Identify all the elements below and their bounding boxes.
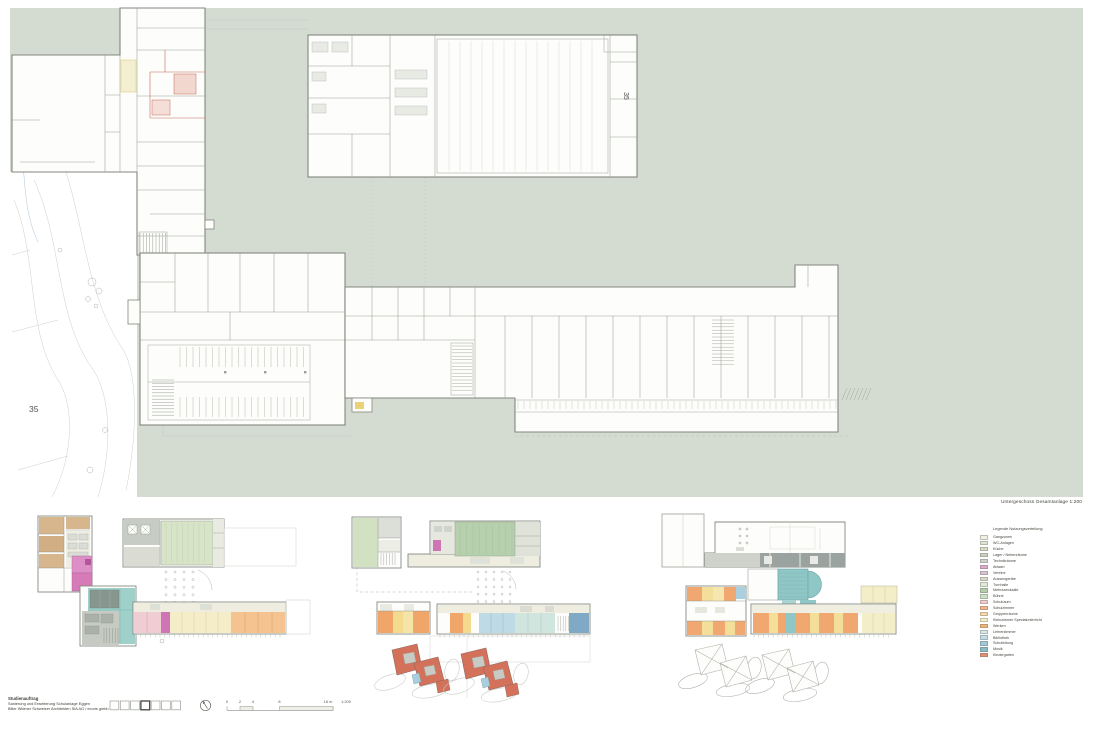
keyplan-box — [172, 701, 181, 710]
legend-swatch — [980, 647, 988, 651]
plan1-tree-grid — [165, 571, 194, 604]
legend-swatch — [980, 588, 988, 592]
site-street-number: 35 — [29, 404, 39, 414]
legend-label: Schulleitung — [993, 641, 1013, 645]
legend-item: Kindergarten — [980, 652, 1092, 658]
legend-label: Abwart — [993, 565, 1004, 569]
legend-label: Aussengeräte — [993, 577, 1016, 581]
legend-swatch — [980, 653, 988, 657]
legend-swatch — [980, 541, 988, 545]
legend-label: Kindergarten — [993, 653, 1014, 657]
plan1-turnhalle — [161, 521, 213, 565]
legend-swatch — [980, 635, 988, 639]
scale-ratio: 1:200 — [341, 699, 352, 704]
legend-label: Gruppenräume — [993, 612, 1018, 616]
legend-label: Schulzimmer — [993, 606, 1014, 610]
scale-tick-2: 2 — [239, 699, 241, 704]
alteration-mark — [121, 60, 136, 92]
footer: 0 2 4 8 16 m 1:200 — [110, 699, 352, 711]
legend-label: Werken — [993, 624, 1006, 628]
scale-bar: 0 2 4 8 16 m 1:200 — [226, 699, 352, 710]
legend-swatch — [980, 577, 988, 581]
legend-swatch — [980, 559, 988, 563]
plan3-curved-room — [808, 571, 822, 598]
scale-tick-16: 16 m — [324, 699, 333, 704]
plan-erdgeschoss — [38, 516, 310, 646]
legend-swatch — [980, 630, 988, 634]
storey-keyplan — [110, 701, 181, 710]
plan2-schulleitung — [569, 613, 589, 633]
legend-swatch — [980, 624, 988, 628]
legend-swatch — [980, 553, 988, 557]
legend-label: Mehrzwecksäle — [993, 588, 1018, 592]
main-plan: 35 484 — [10, 8, 1083, 497]
keyplan-box — [110, 701, 119, 710]
plan-obergeschoss-1 — [352, 517, 590, 705]
legend-swatch — [980, 594, 988, 598]
legend-label: Kleinzimmer Spezialunterricht — [993, 618, 1042, 622]
title-block: Studienauftrag Sanierung und Erweiterung… — [8, 696, 109, 712]
kindergarten-pavilions — [373, 644, 462, 701]
plan3-musik-block — [778, 569, 808, 600]
legend-label: Technikräume — [993, 559, 1016, 563]
legend-label: Bibliothek — [993, 636, 1009, 640]
legend-label: Gangzonen — [993, 535, 1012, 539]
legend-label: Lager / Nebenräume — [993, 553, 1027, 557]
legend: Legende Nutzungsverteilung GangzonenWC-A… — [980, 526, 1092, 658]
legend-swatch — [980, 571, 988, 575]
legend-label: WC-Anlagen — [993, 541, 1014, 545]
legend-label: Küche — [993, 547, 1003, 551]
kindergarten-roof-outlines — [677, 644, 764, 699]
legend-swatch — [980, 547, 988, 551]
legend-swatch — [980, 582, 988, 586]
alteration-mark-entry — [355, 402, 364, 409]
legend-swatch — [980, 618, 988, 622]
keyplan-box — [162, 701, 171, 710]
north-arrow-icon — [200, 700, 210, 710]
legend-items: GangzonenWC-AnlagenKücheLager / Nebenräu… — [980, 535, 1092, 659]
plan1-bottom-ticks — [136, 634, 280, 638]
plan2-corridor — [438, 605, 589, 613]
scale-tick-8: 8 — [278, 699, 280, 704]
building-hall: 35 — [308, 35, 637, 177]
keyplan-box — [120, 701, 129, 710]
site-area: 35 484 — [10, 118, 137, 497]
legend-label: Schulraum — [993, 600, 1011, 604]
plan2-turnhalle — [353, 518, 378, 567]
legend-title: Legende Nutzungsverteilung — [993, 526, 1092, 531]
plan2-mehrzwecksaal — [455, 522, 515, 556]
title-block-architect: Biller Widmer Schweizer Architekten SIA … — [8, 707, 109, 712]
hall-street-number: 35 — [622, 92, 629, 100]
legend-swatch — [980, 535, 988, 539]
legend-swatch — [980, 606, 988, 610]
keyplan-box — [151, 701, 160, 710]
legend-swatch — [980, 612, 988, 616]
legend-label: Vereine — [993, 571, 1006, 575]
legend-swatch — [980, 641, 988, 645]
legend-swatch — [980, 600, 988, 604]
plan2-bibliothek — [479, 613, 515, 633]
legend-label: Turnhalle — [993, 583, 1008, 587]
legend-label: Bühne — [993, 594, 1004, 598]
legend-label: Musik — [993, 647, 1003, 651]
plan-sheet: 35 484 — [0, 0, 1093, 729]
plan3-bottom-ticks — [754, 634, 888, 638]
legend-label: Lehrerzimmer — [993, 630, 1016, 634]
main-plan-caption: Untergeschoss Gesamtanlage 1:200 — [1001, 500, 1082, 505]
scale-tick-4: 4 — [252, 699, 255, 704]
legend-swatch — [980, 565, 988, 569]
keyplan-box — [131, 701, 140, 710]
scale-tick-0: 0 — [226, 699, 229, 704]
plan2-tree-grid — [477, 571, 511, 603]
plan-obergeschoss-2 — [662, 514, 897, 704]
plan3-corridor — [752, 605, 895, 613]
keyplan-box-active — [141, 701, 150, 710]
